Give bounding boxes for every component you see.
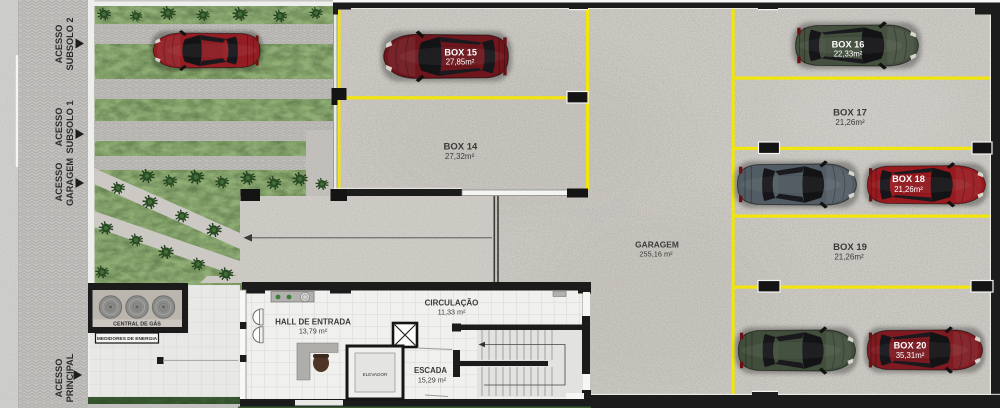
svg-text:13,79 m²: 13,79 m² bbox=[299, 327, 328, 336]
svg-text:27,85m²: 27,85m² bbox=[446, 58, 475, 67]
svg-text:22,33m²: 22,33m² bbox=[834, 50, 863, 59]
svg-text:BOX 16: BOX 16 bbox=[832, 40, 865, 50]
svg-text:BOX 18: BOX 18 bbox=[892, 174, 925, 184]
svg-text:21,26m²: 21,26m² bbox=[835, 118, 865, 127]
svg-text:HALL DE ENTRADA: HALL DE ENTRADA bbox=[275, 318, 351, 327]
svg-text:21,26m²: 21,26m² bbox=[894, 185, 923, 194]
svg-text:BOX 15: BOX 15 bbox=[444, 48, 477, 58]
svg-text:27,32m²: 27,32m² bbox=[445, 152, 475, 161]
svg-text:21,26m²: 21,26m² bbox=[834, 253, 864, 262]
svg-text:ELEVADOR: ELEVADOR bbox=[363, 372, 388, 377]
svg-text:255,16 m²: 255,16 m² bbox=[639, 250, 673, 259]
svg-text:GARAGEM: GARAGEM bbox=[635, 240, 679, 250]
svg-text:ESCADA: ESCADA bbox=[414, 366, 447, 375]
svg-text:BOX 20: BOX 20 bbox=[894, 341, 927, 351]
svg-text:CENTRAL DE GÁS: CENTRAL DE GÁS bbox=[113, 321, 161, 328]
svg-text:ACESSOPRINCIPAL: ACESSOPRINCIPAL bbox=[54, 353, 75, 402]
svg-text:CIRCULAÇÃO: CIRCULAÇÃO bbox=[425, 299, 479, 308]
svg-text:BOX 19: BOX 19 bbox=[833, 242, 867, 253]
svg-text:ACESSOSUBSOLO 2: ACESSOSUBSOLO 2 bbox=[54, 17, 75, 70]
svg-text:35,31m²: 35,31m² bbox=[896, 351, 925, 360]
svg-text:ACESSOGARAGEM: ACESSOGARAGEM bbox=[54, 158, 75, 206]
svg-text:BOX 17: BOX 17 bbox=[833, 108, 867, 119]
svg-text:ACESSOSUBSOLO 1: ACESSOSUBSOLO 1 bbox=[54, 100, 75, 153]
svg-text:15,29 m²: 15,29 m² bbox=[418, 376, 447, 385]
svg-text:11,33 m²: 11,33 m² bbox=[438, 308, 466, 317]
svg-text:MEDIDORES DE ENERGIA: MEDIDORES DE ENERGIA bbox=[97, 336, 158, 342]
